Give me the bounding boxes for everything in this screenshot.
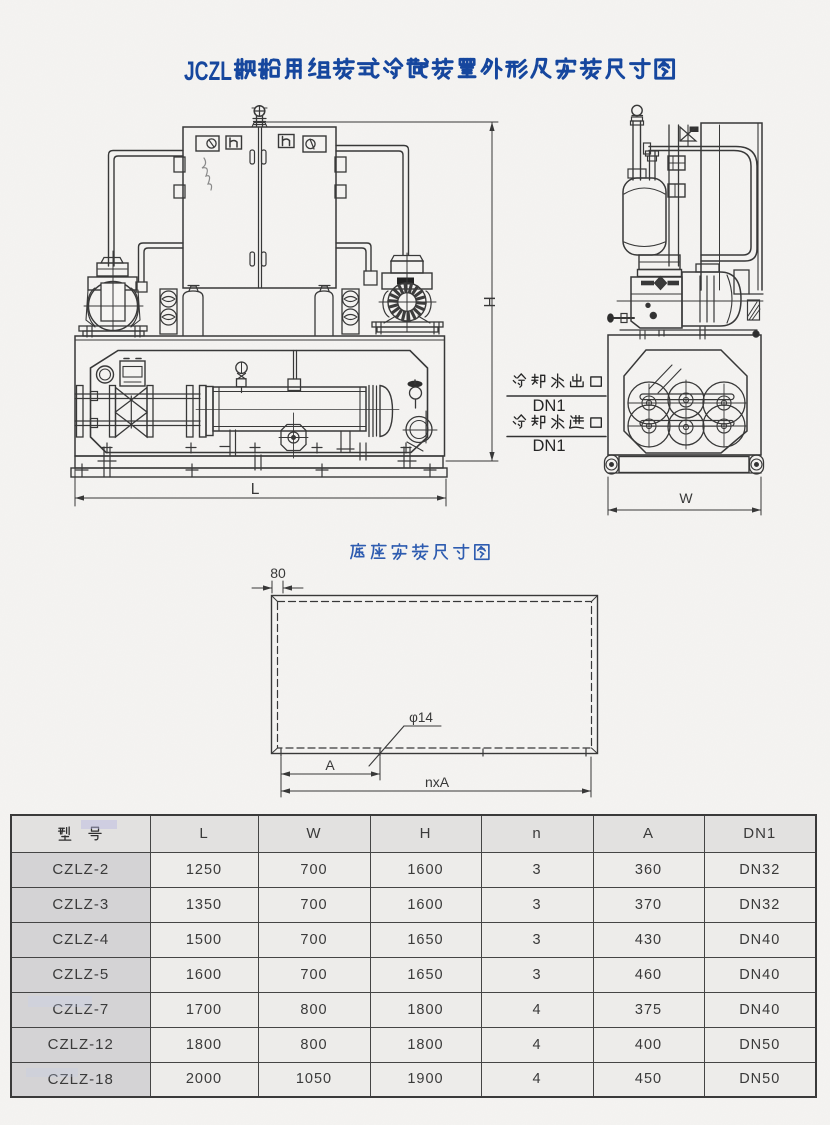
svg-text:φ14: φ14	[409, 710, 433, 725]
svg-text:W: W	[679, 490, 693, 506]
svg-text:DN1: DN1	[532, 397, 565, 415]
svg-text:A: A	[325, 757, 335, 773]
svg-text:L: L	[251, 481, 260, 498]
svg-text:H: H	[480, 296, 497, 307]
svg-text:80: 80	[270, 565, 286, 581]
svg-text:nxA: nxA	[425, 774, 450, 790]
svg-text:DN1: DN1	[532, 437, 565, 455]
svg-text:JCZL: JCZL	[184, 56, 232, 86]
